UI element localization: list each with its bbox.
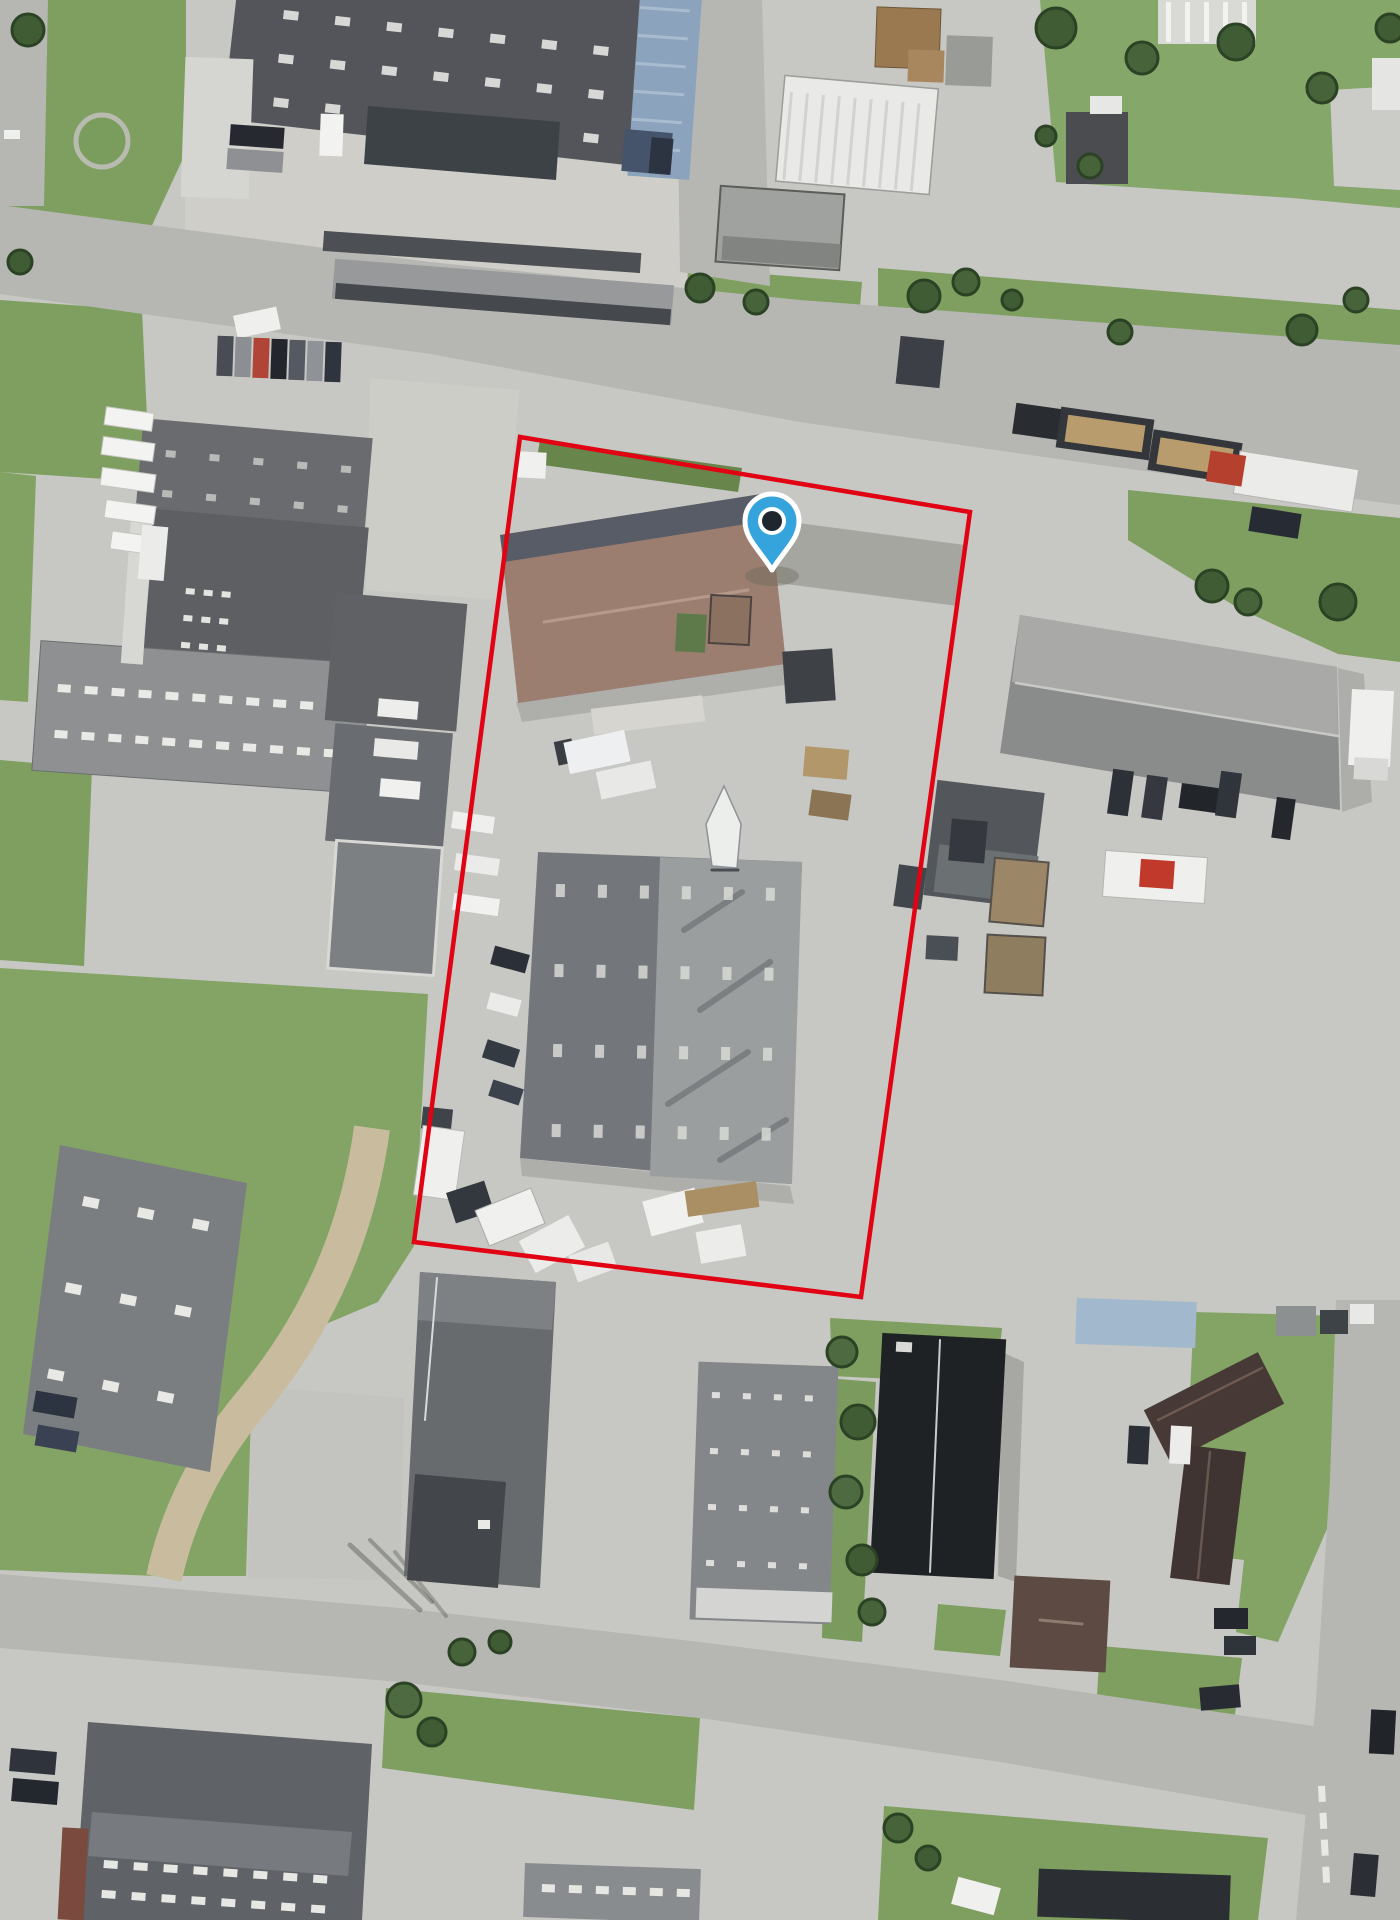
tree [1235, 589, 1261, 615]
location-pin[interactable] [745, 494, 799, 586]
tree [1344, 288, 1368, 312]
tree [489, 1631, 511, 1653]
truck-white [138, 525, 169, 581]
parked-car [216, 336, 233, 377]
car-on-road [1350, 1853, 1379, 1897]
tree [686, 274, 714, 302]
long-hall [32, 641, 370, 794]
building-dark-bottom [1037, 1869, 1231, 1920]
brick-wing [58, 1827, 89, 1920]
car [11, 1778, 59, 1805]
box-truck [1348, 689, 1394, 767]
hedge-ring [76, 115, 128, 167]
grass-west [0, 760, 92, 966]
truck-cab-red [1206, 450, 1246, 486]
shed [945, 35, 993, 87]
roof-vent [896, 1342, 913, 1353]
tree [1307, 73, 1337, 103]
tree [827, 1337, 857, 1367]
house-maroon [1010, 1576, 1111, 1673]
tree [859, 1599, 885, 1625]
machinery [1350, 1304, 1374, 1324]
container-green [675, 613, 707, 653]
gray-hall [690, 1362, 839, 1625]
tree [1036, 8, 1076, 48]
tree [418, 1718, 446, 1746]
pallet-stack [803, 746, 849, 780]
tree [1218, 24, 1254, 60]
workshop-white-frame [328, 840, 443, 975]
parked-car [252, 338, 269, 379]
roof-white-band [696, 1588, 833, 1623]
machinery [1320, 1310, 1348, 1334]
tree [1376, 14, 1400, 42]
tree [1078, 154, 1102, 178]
yard-west [366, 378, 520, 600]
parked-car [324, 342, 341, 383]
map-canvas[interactable] [0, 0, 1400, 1920]
container-blue [1075, 1298, 1197, 1348]
car [1199, 1684, 1241, 1710]
pin-dot [762, 511, 782, 531]
tree [1126, 42, 1158, 74]
container-dark [782, 648, 836, 703]
parked-car [306, 341, 323, 382]
annex-dark [407, 1474, 506, 1588]
tree [744, 290, 768, 314]
tree [8, 250, 32, 274]
tree [841, 1405, 875, 1439]
gable-light [418, 1272, 556, 1330]
trailer-load [985, 935, 1046, 996]
trailer-white [515, 451, 546, 479]
field-hall [23, 1145, 247, 1472]
truck-red-tarp [1139, 859, 1175, 889]
parked-car [288, 340, 305, 381]
tree [908, 280, 940, 312]
roof-white [1090, 96, 1122, 114]
parked-car [270, 339, 287, 380]
tree [1002, 290, 1022, 310]
truck-dark [648, 137, 673, 175]
shed-small [709, 595, 751, 645]
tree [1196, 570, 1228, 602]
car [1224, 1636, 1256, 1655]
tree [953, 269, 979, 295]
van-white [373, 738, 418, 760]
car-on-road [1369, 1709, 1396, 1754]
truck-cab [1353, 757, 1388, 781]
car-white [4, 130, 20, 139]
car [9, 1748, 57, 1775]
tree [12, 14, 44, 46]
car-white [319, 114, 343, 157]
crates [907, 49, 944, 82]
truck-cab [1012, 403, 1064, 440]
aerial-map-view[interactable] [0, 0, 1400, 1920]
rooflight [478, 1520, 490, 1529]
car [229, 124, 284, 149]
car [226, 148, 283, 173]
machine [948, 819, 988, 864]
container [896, 336, 945, 388]
tree [830, 1476, 862, 1508]
tree [449, 1639, 475, 1665]
trailer-load [989, 858, 1048, 926]
grass-southeast [934, 1604, 1006, 1656]
tree [387, 1683, 421, 1717]
tree [847, 1545, 877, 1575]
car [1127, 1425, 1150, 1464]
bush [916, 1846, 940, 1870]
tree [1287, 315, 1317, 345]
car-white [1169, 1425, 1192, 1464]
car [1214, 1608, 1248, 1629]
tree [1320, 584, 1356, 620]
tree [1108, 320, 1132, 344]
tree [1036, 126, 1056, 146]
building-white [1372, 58, 1400, 110]
parked-car [234, 337, 251, 378]
van-white [377, 698, 418, 719]
pallet-stack [808, 789, 851, 820]
machinery [1276, 1306, 1316, 1336]
van-white [379, 778, 420, 799]
equipment [925, 935, 958, 961]
bush [884, 1814, 912, 1842]
